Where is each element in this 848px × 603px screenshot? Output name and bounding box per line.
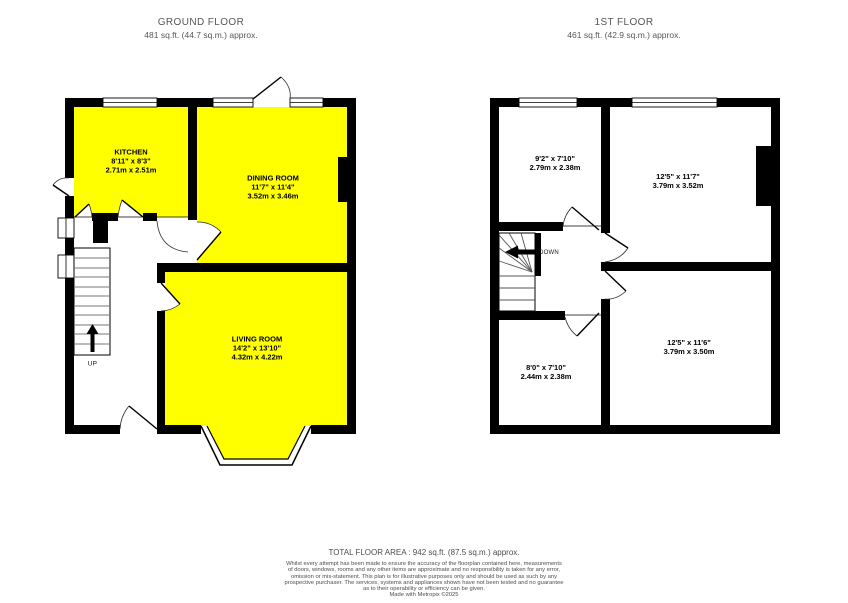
chimney-breast-ground: [338, 157, 356, 202]
dining-window-left: [213, 98, 253, 107]
room-dims-m: 3.52m x 3.46m: [247, 192, 299, 201]
door-leaves: [572, 207, 628, 336]
kitchen-window: [103, 98, 157, 107]
floorplan-canvas: [0, 0, 848, 603]
ground-floor-plan: [53, 77, 356, 465]
living-room-label: LIVING ROOM 14'2" x 13'10" 4.32m x 4.22m: [232, 335, 283, 362]
room-name: KITCHEN: [106, 148, 157, 157]
dining-window-right: [290, 98, 323, 107]
bedroom1-label: 9'2" x 7'10" 2.79m x 2.38m: [530, 154, 581, 172]
room-dims-ft: 11'7" x 11'4": [247, 183, 299, 192]
first-floor-stairs: [499, 233, 535, 311]
bedroom4-label: 12'5" x 11'6" 3.79m x 3.50m: [664, 338, 715, 356]
bay-window: [201, 426, 311, 465]
stairs-down-label: DOWN: [539, 250, 559, 256]
floorplan-page: GROUND FLOOR 481 sq.ft. (44.7 sq.m.) app…: [0, 0, 848, 603]
bedroom1-window: [519, 98, 577, 107]
room-dims-m: 2.44m x 2.38m: [521, 372, 572, 381]
first-floor-plan: [490, 98, 780, 434]
room-dims-ft: 12'5" x 11'6": [664, 338, 715, 347]
chimney-breast-first: [756, 146, 772, 206]
room-dims-ft: 9'2" x 7'10": [530, 154, 581, 163]
room-dims-m: 2.71m x 2.51m: [106, 166, 157, 175]
dining-room-label: DINING ROOM 11'7" x 11'4" 3.52m x 3.46m: [247, 174, 299, 201]
bedroom3-label: 8'0" x 7'10" 2.44m x 2.38m: [521, 363, 572, 381]
hall-side-window-lower: [58, 255, 74, 278]
room-dims-ft: 14'2" x 13'10": [232, 344, 283, 353]
room-dims-ft: 8'11" x 8'3": [106, 157, 157, 166]
room-dims-m: 2.79m x 2.38m: [530, 163, 581, 172]
room-dims-m: 3.79m x 3.52m: [653, 181, 704, 190]
room-name: DINING ROOM: [247, 174, 299, 183]
stairs-up-label: UP: [88, 361, 97, 368]
bedroom2-label: 12'5" x 11'7" 3.79m x 3.52m: [653, 172, 704, 190]
footer: TOTAL FLOOR AREA : 942 sq.ft. (87.5 sq.m…: [285, 548, 564, 599]
credit-line: Made with Metropix ©2025: [285, 592, 564, 598]
kitchen-label: KITCHEN 8'11" x 8'3" 2.71m x 2.51m: [106, 148, 157, 175]
room-dims-m: 4.32m x 4.22m: [232, 353, 283, 362]
bedroom2-window: [632, 98, 717, 107]
first-floor-doors: [563, 207, 628, 336]
disclaimer-line: of doors, windows, rooms and any other i…: [285, 567, 564, 573]
ground-floor-stairs: [74, 248, 110, 355]
room-dims-ft: 8'0" x 7'10": [521, 363, 572, 372]
total-floor-area: TOTAL FLOOR AREA : 942 sq.ft. (87.5 sq.m…: [285, 548, 564, 558]
hall-side-window-upper: [58, 218, 74, 238]
room-name: LIVING ROOM: [232, 335, 283, 344]
room-dims-ft: 12'5" x 11'7": [653, 172, 704, 181]
room-dims-m: 3.79m x 3.50m: [664, 347, 715, 356]
disclaimer-line: omission or mis-statement. This plan is …: [285, 574, 564, 580]
